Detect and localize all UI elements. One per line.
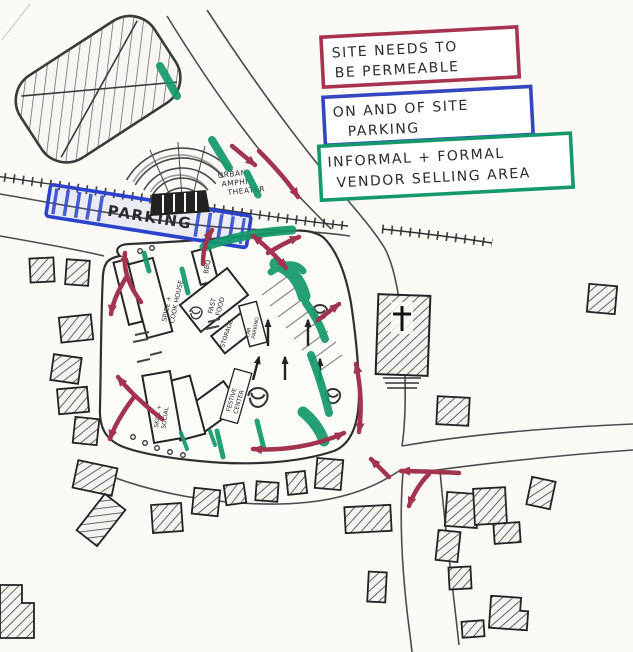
sketch-canvas: PARKING URBAN AMPHI- THEATER SPICE + COO… (0, 0, 633, 652)
context-building (435, 530, 460, 562)
context-building (448, 566, 471, 589)
context-building (526, 477, 555, 509)
context-building (224, 483, 247, 506)
context-building (493, 522, 520, 544)
amphitheater-stage (150, 190, 210, 216)
context-building (59, 314, 93, 342)
church-building (376, 294, 431, 388)
context-building (315, 458, 344, 490)
legend-box-vendor: INFORMAL + FORMAL VENDOR SELLING AREA (319, 133, 573, 200)
context-building (473, 487, 507, 525)
context-building (367, 572, 387, 603)
context-building (587, 284, 617, 314)
context-building (255, 481, 278, 501)
context-building (65, 259, 90, 286)
context-building (73, 417, 100, 445)
context-building (286, 471, 307, 495)
context-building (461, 620, 484, 637)
context-building (344, 505, 391, 533)
context-building (192, 488, 221, 517)
context-building (436, 396, 469, 426)
context-building (29, 257, 54, 282)
context-building (50, 354, 81, 384)
site-plan-sketch: PARKING URBAN AMPHI- THEATER SPICE + COO… (0, 0, 633, 652)
context-building (57, 387, 89, 415)
context-building (151, 503, 183, 533)
legend-box-permeable: SITE NEEDS TO BE PERMEABLE (321, 27, 519, 87)
